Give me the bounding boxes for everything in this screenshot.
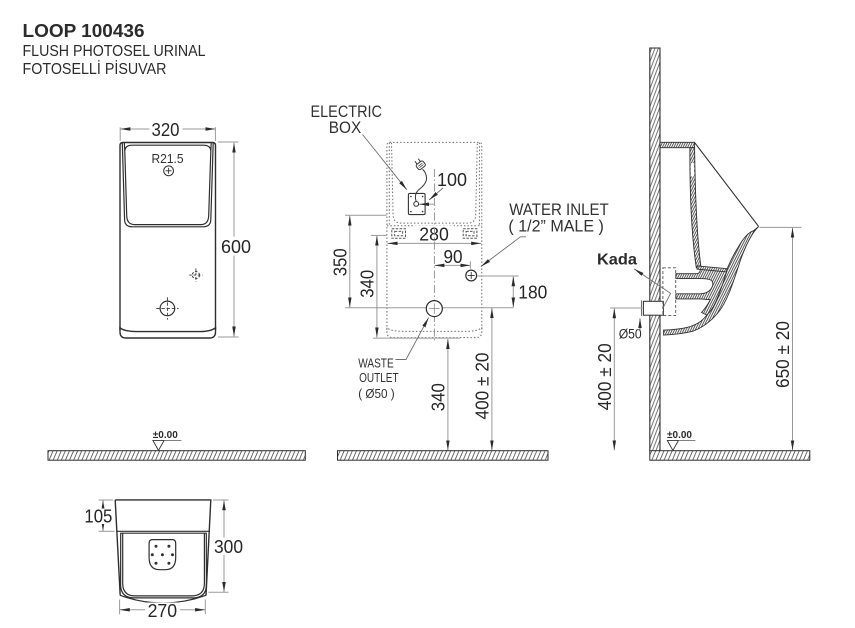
svg-text:Kada: Kada — [597, 252, 637, 269]
svg-text:340: 340 — [429, 383, 449, 411]
svg-text:( 1/2” MALE ): ( 1/2” MALE ) — [508, 216, 604, 235]
svg-text:320: 320 — [152, 120, 180, 140]
svg-text:180: 180 — [518, 282, 547, 302]
svg-text:WASTE: WASTE — [358, 357, 394, 371]
svg-text:100: 100 — [437, 170, 467, 190]
svg-text:Ø50: Ø50 — [619, 327, 642, 342]
svg-text:±0.00: ±0.00 — [667, 430, 692, 441]
svg-text:FOTOSELLİ PİSUVAR: FOTOSELLİ PİSUVAR — [23, 60, 167, 78]
svg-text:90: 90 — [444, 247, 463, 267]
svg-text:340: 340 — [358, 270, 378, 298]
svg-text:OUTLET: OUTLET — [359, 371, 399, 385]
svg-text:650 ± 20: 650 ± 20 — [773, 321, 793, 388]
svg-text:R21.5: R21.5 — [152, 152, 184, 166]
svg-text:600: 600 — [221, 237, 251, 257]
svg-text:LOOP 100436: LOOP 100436 — [23, 21, 145, 41]
svg-text:270: 270 — [148, 601, 178, 621]
svg-text:105: 105 — [84, 507, 112, 527]
svg-text:400 ± 20: 400 ± 20 — [595, 343, 615, 410]
svg-text:400 ± 20: 400 ± 20 — [473, 353, 493, 420]
svg-text:FLUSH PHOTOSEL URINAL: FLUSH PHOTOSEL URINAL — [23, 43, 206, 60]
svg-text:BOX: BOX — [329, 118, 362, 137]
svg-text:300: 300 — [214, 537, 243, 557]
svg-text:±0.00: ±0.00 — [153, 430, 178, 441]
svg-text:( Ø50 ): ( Ø50 ) — [358, 387, 395, 401]
svg-text:350: 350 — [330, 248, 350, 276]
